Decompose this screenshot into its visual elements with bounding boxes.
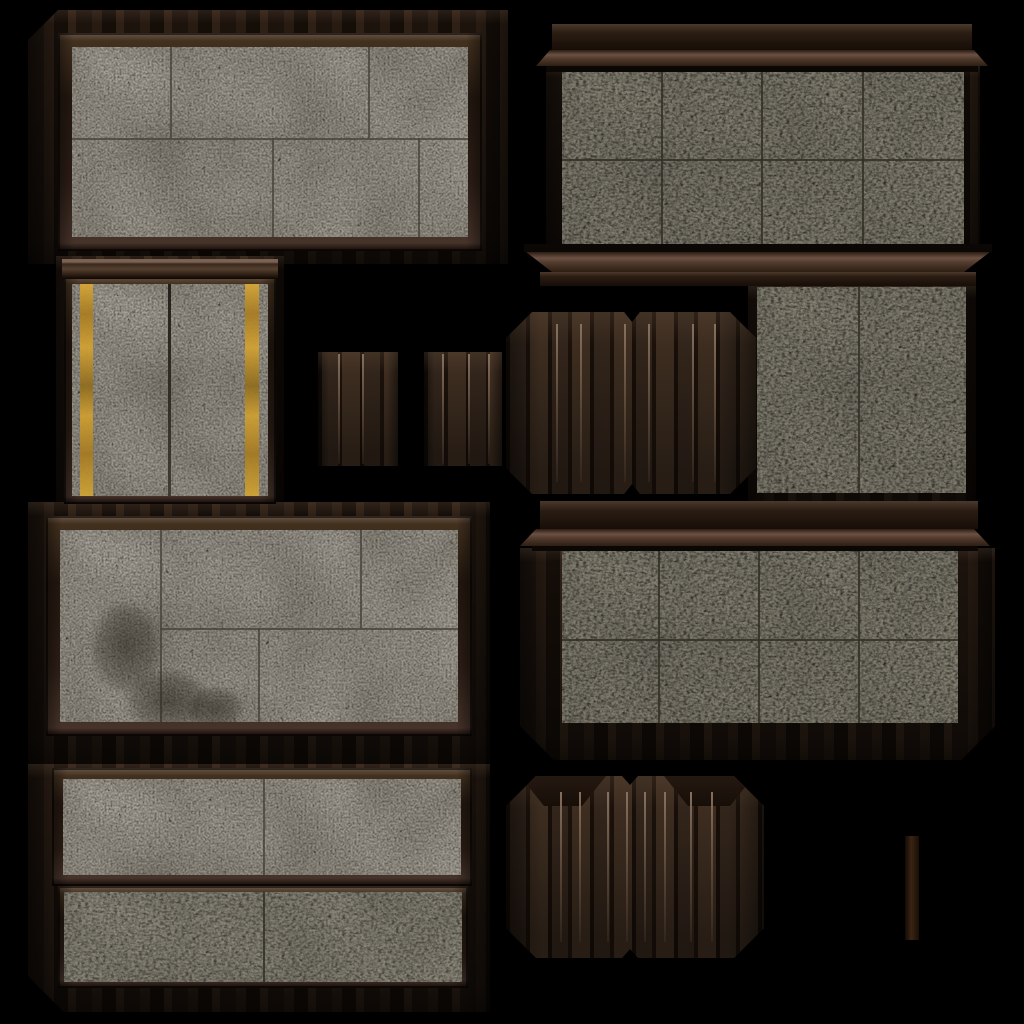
concrete-noise [72,47,468,237]
merlon-block [664,776,754,806]
plank-highlight [711,792,713,942]
plank-highlight [626,792,628,942]
stain-blob [178,678,253,722]
plank-highlight [468,354,470,464]
grout-line [72,138,468,140]
grout-line [418,138,420,237]
rail-yellow-panel-bar [62,259,278,279]
plank-highlight [579,792,581,942]
grout-line [272,138,274,237]
sill-top-right [524,244,992,286]
plank-highlight [362,354,364,464]
concrete-yellow-stripes-frame [64,276,276,504]
plank-panel-bottom [506,776,764,958]
grout-line [562,639,958,641]
grout-line [862,70,864,248]
cornice-center-right-bar [540,501,978,529]
cornice-top-right-bar [552,24,972,50]
concrete-strip-bottom-1-frame [52,768,472,886]
concrete-tiles-top-right [562,70,964,248]
wood-bar-small [905,836,919,940]
plank-highlight [607,792,609,942]
plank-highlight [644,792,646,942]
concrete-strip-bottom-1 [63,779,461,875]
plank-strip-right [424,352,502,466]
concrete-tiles-center-right [562,551,958,723]
hazard-stripe [80,284,93,496]
grout-line [562,159,964,161]
concrete-noise [757,287,966,493]
concrete-blocks-center-left [60,530,458,722]
cornice-top-right [536,24,988,72]
plank-highlight [714,324,716,482]
grout-line [368,47,370,138]
plank-highlight [690,792,692,942]
concrete-strip-bottom-2 [64,892,462,982]
cornice-center-right [520,501,990,551]
grout-line [858,551,860,723]
grout-line [263,892,265,982]
concrete-noise [63,779,461,875]
grout-line [658,551,660,723]
plank-highlight [692,324,694,482]
crack-line [168,284,171,496]
merlon-block [520,776,606,806]
grout-line [263,779,265,875]
plank-highlight [442,354,444,464]
sill-top-right-bar [540,272,976,286]
plank-highlight [556,324,558,482]
concrete-strip-bottom-2-frame [58,886,468,988]
sill-top-right-bar [526,252,990,272]
plank-panel-middle [506,312,756,494]
concrete-blocks-top-left [72,47,468,237]
texture-atlas [0,0,1024,1024]
grout-line [160,628,458,630]
grout-line [761,70,763,248]
grout-line [170,47,172,138]
cornice-center-right-bar [532,546,978,551]
grout-line [360,530,362,628]
plank-highlight [664,792,666,942]
hazard-stripe [245,284,259,496]
cornice-center-right-bar [520,529,990,546]
plank-highlight [624,324,626,482]
concrete-blocks-center-left-frame [46,516,472,736]
concrete-mid-right [757,287,966,493]
concrete-yellow-stripes [72,284,268,496]
plank-highlight [338,354,340,464]
grout-line [258,628,260,722]
plank-highlight [580,324,582,482]
concrete-noise [562,551,958,723]
plank-highlight [560,792,562,942]
plank-highlight [648,324,650,482]
plank-highlight [488,354,490,464]
plank-strip-left [318,352,398,466]
rail-yellow-panel [62,259,278,279]
grout-line [758,551,760,723]
grout-line [858,287,860,493]
grout-line [661,70,663,248]
cornice-top-right-bar [536,50,988,66]
concrete-blocks-top-left-frame [58,33,482,251]
cornice-top-right-bar [546,66,978,72]
sill-top-right-bar [524,244,992,252]
